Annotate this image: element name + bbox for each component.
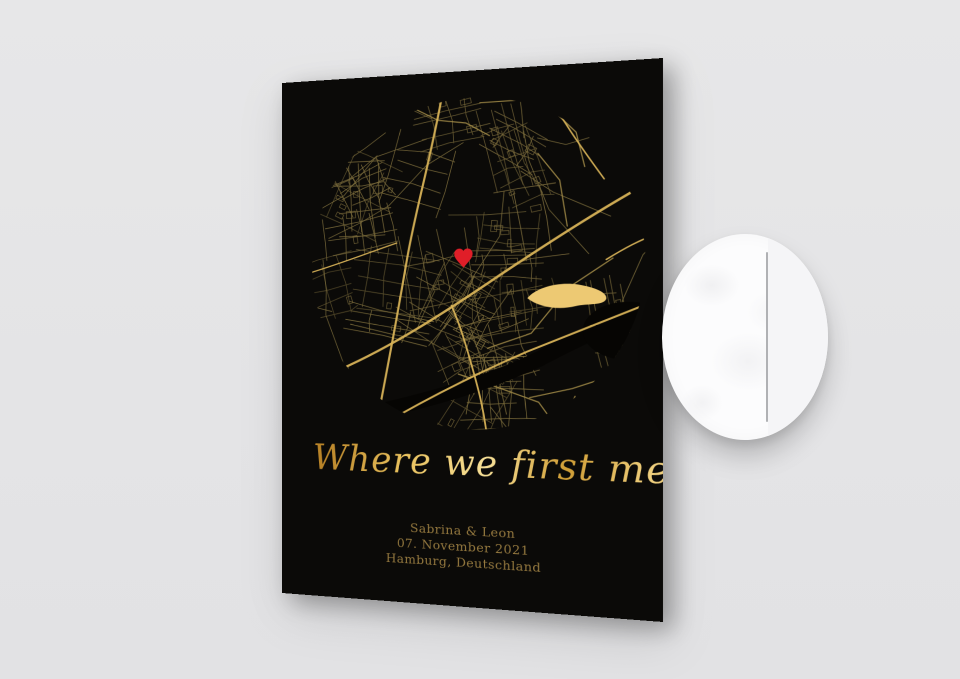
scene: Where we first met Sabrina & Leon 07. No… (0, 0, 960, 679)
material-detail-circle (662, 234, 828, 440)
material-detail-right-panel (768, 234, 828, 440)
poster-title: Where we first met (313, 438, 663, 494)
map-poster: Where we first met Sabrina & Leon 07. No… (282, 58, 663, 622)
poster-subtitle-block: Sabrina & Leon 07. November 2021 Hamburg… (280, 513, 663, 584)
material-edge-line (766, 252, 768, 422)
city-map-circle (308, 83, 649, 439)
streets-layer (308, 83, 649, 439)
city-map-svg (308, 83, 649, 439)
